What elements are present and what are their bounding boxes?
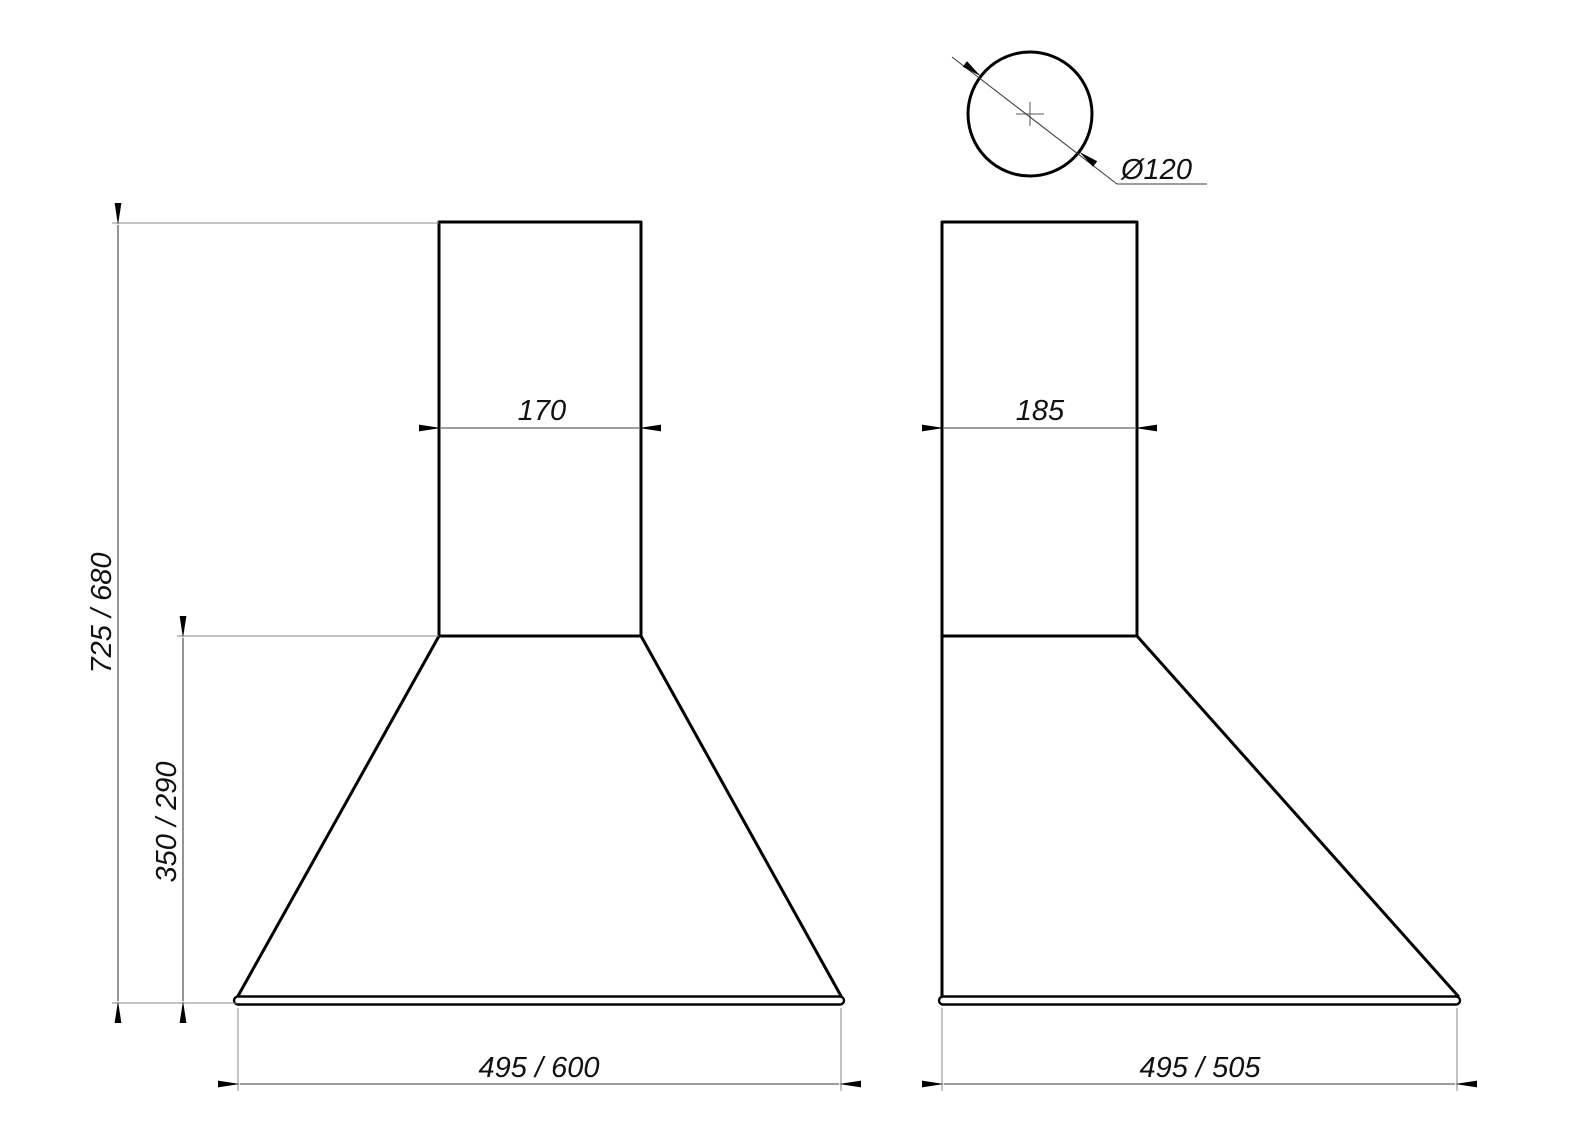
- cooker-hood-dimension-drawing: Ø120 170 725 / 680 350 / 290 495 / 600: [0, 0, 1588, 1123]
- side-overall-depth-label: 495 / 505: [1140, 1052, 1262, 1084]
- front-chimney-width-label: 170: [518, 395, 566, 427]
- front-overall-width-label: 495 / 600: [479, 1052, 600, 1084]
- front-view-hood-right-slant: [641, 636, 841, 996]
- duct-diameter-arrow-upper: [963, 61, 981, 76]
- front-hood-height-label: 350 / 290: [151, 762, 183, 883]
- front-overall-height-label: 725 / 680: [86, 553, 118, 674]
- side-chimney-depth-label: 185: [1016, 395, 1065, 427]
- duct-diameter-arrow-lower: [1079, 152, 1097, 167]
- front-view-dimensions: 170 725 / 680 350 / 290 495 / 600: [86, 223, 841, 1091]
- side-view: [939, 222, 1460, 1005]
- duct-diameter-label: Ø120: [1120, 154, 1192, 186]
- side-view-bottom-rim: [939, 997, 1460, 1005]
- side-view-dimensions: 185 495 / 505: [942, 395, 1457, 1091]
- front-view-chimney-outline: [439, 222, 641, 636]
- side-view-hood-front-slant: [1137, 636, 1458, 996]
- side-view-back-and-chimney-outline: [942, 222, 1137, 997]
- technical-drawing-page: Ø120 170 725 / 680 350 / 290 495 / 600: [0, 0, 1588, 1123]
- duct-outlet-detail: Ø120: [952, 52, 1207, 186]
- front-view-hood-left-slant: [238, 636, 439, 996]
- front-view-bottom-rim: [234, 997, 844, 1005]
- front-view: [234, 222, 844, 1005]
- duct-center-cross-icon: [1016, 102, 1044, 126]
